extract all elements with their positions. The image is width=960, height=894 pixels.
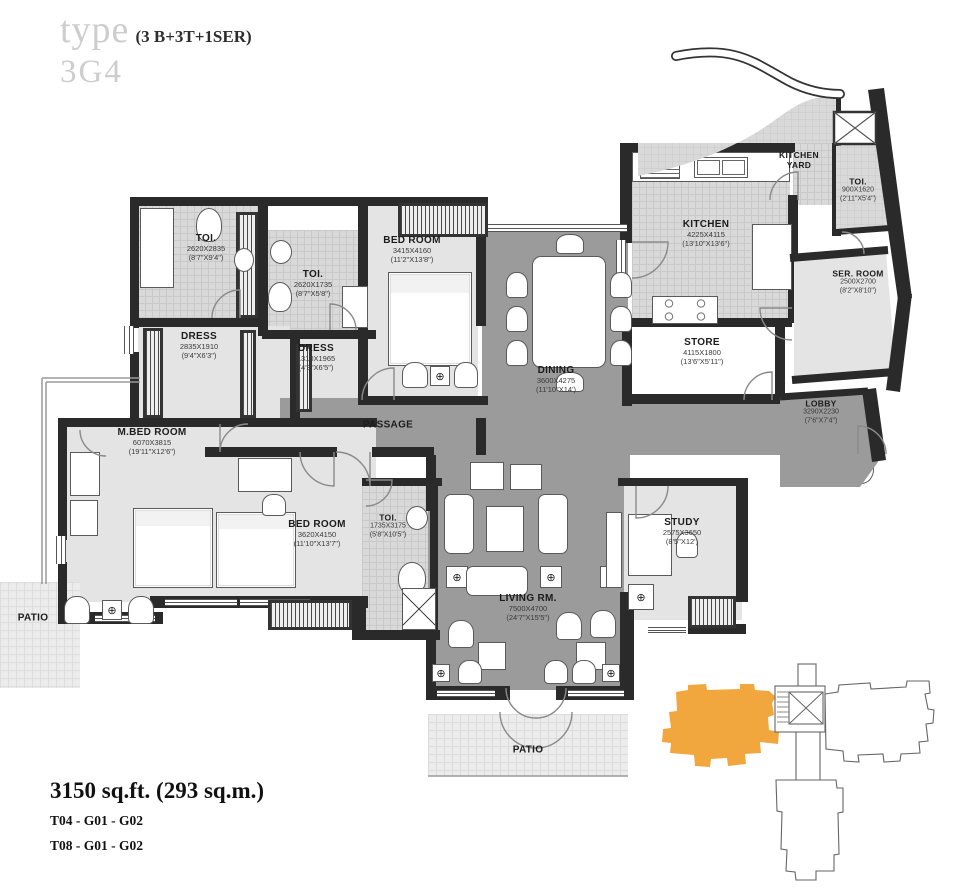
- chair: [556, 234, 584, 254]
- key-plan-highlighted-unit: [662, 684, 779, 767]
- tower-line-2: T08 - G01 - G02: [50, 838, 264, 854]
- side-table: [470, 462, 504, 490]
- room-label-toi2: TOI.2620X1735(8'7"X5'8"): [294, 269, 332, 299]
- toilet: [268, 282, 292, 312]
- wall: [62, 418, 377, 427]
- room-label-lobby: LOBBY3290X2230(7'6"X7'4"): [803, 398, 839, 426]
- plan-header: type(3 B+3T+1SER) 3G4: [60, 8, 252, 91]
- planter: ⊕: [432, 664, 450, 682]
- wall: [205, 447, 337, 457]
- window: [437, 690, 495, 697]
- chair: [556, 612, 582, 640]
- key-plan-right-wing: [825, 681, 934, 762]
- window: [568, 690, 624, 697]
- window: [648, 627, 686, 633]
- chair: [128, 596, 154, 624]
- room-label-patio-left: PATIO: [18, 613, 49, 624]
- refrigerator: [752, 224, 792, 290]
- wardrobe: [70, 452, 100, 496]
- table: [478, 642, 506, 670]
- type-word: type: [60, 9, 129, 51]
- chair: [64, 596, 90, 624]
- room-label-patio-bottom: PATIO: [513, 745, 544, 756]
- area-text: 3150 sq.ft. (293 sq.m.): [50, 778, 264, 804]
- wall: [736, 478, 748, 602]
- washbasin: [270, 240, 292, 264]
- chair: [402, 362, 428, 388]
- wall: [628, 394, 780, 404]
- drainboard: [640, 156, 680, 179]
- table: ⊕: [102, 600, 122, 620]
- chair: [454, 362, 478, 388]
- ledge-hatch: [398, 203, 488, 237]
- plan-footer: 3150 sq.ft. (293 sq.m.) T04 - G01 - G02 …: [50, 778, 264, 854]
- ledge-hatch: [240, 330, 256, 418]
- chair: [610, 272, 632, 298]
- window: [487, 224, 627, 232]
- wall: [372, 447, 434, 457]
- wall: [618, 478, 744, 486]
- wall: [775, 320, 785, 404]
- ledge-hatch: [143, 328, 163, 418]
- planter: ⊕: [446, 566, 468, 588]
- chair: [506, 340, 528, 366]
- room-label-dress1: DRESS2835X1910(9'4"X6'3"): [180, 331, 218, 361]
- sofa: [444, 494, 474, 554]
- console: [606, 512, 622, 588]
- chair: [506, 272, 528, 298]
- loveseat: [466, 566, 528, 596]
- room-label-mbedroom: M.BED ROOM6070X3815(19'11"X12'6"): [117, 427, 186, 457]
- room-label-toi1: TOI.2620X2835(8'7"X9'4"): [187, 233, 225, 263]
- side-table: [510, 464, 542, 490]
- room-label-living: LIVING RM.7500X4700(24'7"X15'5"): [499, 593, 556, 623]
- planter: ⊕: [540, 566, 562, 588]
- wall: [358, 396, 488, 405]
- chair: [610, 340, 632, 366]
- vanity: [342, 286, 368, 328]
- washbasin: ⊕: [838, 416, 866, 444]
- window: [124, 326, 134, 354]
- room-label-bedroom2: BED ROOM3620X4150(11'10"X13'7"): [288, 519, 345, 549]
- room-label-toi4: TOI.1735X3175(5'8"X10'5"): [370, 512, 406, 540]
- ledge-hatch: [268, 600, 352, 630]
- room-label-dress2: DRESS1310X1965(4'3"X6'5"): [297, 343, 335, 373]
- wall: [58, 418, 67, 540]
- chair: [448, 620, 474, 648]
- wall: [130, 197, 139, 328]
- chair: [458, 660, 482, 684]
- bed: [133, 508, 213, 588]
- chair: [610, 306, 632, 332]
- sofa: [538, 494, 568, 554]
- key-plan-bottom-wing: [796, 732, 820, 780]
- outer-wall-right: [886, 294, 912, 392]
- desk: [238, 458, 292, 492]
- wall: [258, 206, 268, 336]
- wall: [832, 96, 841, 236]
- ledge-hatch: [688, 596, 736, 628]
- washbasin: [406, 506, 428, 530]
- washbasin: [234, 248, 254, 272]
- key-plan: [648, 640, 960, 894]
- room-label-dining: DINING3600X4275(11'10"X14'): [536, 365, 576, 395]
- room-label-toi3: TOI.900X1620(2'11"X5'4"): [840, 176, 876, 204]
- room-label-study: STUDY2575X3650(8'5"X12'): [663, 517, 701, 547]
- chair: [262, 494, 286, 516]
- wall: [476, 418, 486, 455]
- room-label-bedroom-top: BED ROOM3415X4160(11'2"X13'8"): [383, 235, 440, 265]
- bed: [388, 272, 472, 366]
- unit-code: 3G4: [60, 54, 252, 91]
- tower-line-1: T04 - G01 - G02: [50, 813, 264, 829]
- shower: [402, 588, 436, 630]
- planter: ⊕: [430, 366, 450, 386]
- window: [165, 599, 237, 606]
- chair: [590, 610, 616, 638]
- chair: [506, 306, 528, 332]
- chair: [544, 660, 568, 684]
- unit-config: (3 B+3T+1SER): [135, 27, 251, 46]
- room-label-passage: PASSAGE: [363, 420, 413, 431]
- wall: [362, 630, 440, 640]
- wall: [625, 143, 795, 152]
- window: [56, 536, 66, 564]
- wall: [130, 352, 139, 426]
- bathtub: [140, 208, 174, 288]
- room-label-kitchen: KITCHEN4225X4115(13'10"X13'6"): [682, 219, 729, 249]
- bed: [216, 512, 296, 588]
- planter: ⊕: [602, 664, 620, 682]
- curved-yard-wall: [676, 52, 840, 94]
- toilet: [844, 450, 874, 484]
- dining-table: [532, 256, 606, 368]
- dresser: [70, 500, 98, 536]
- room-label-kitchen-yard: KITCHENYARD: [779, 150, 819, 170]
- wall: [130, 318, 265, 327]
- planter: ⊕: [628, 584, 654, 610]
- stove: [652, 296, 718, 324]
- room-label-ser-room: SER. ROOM2500X2700(8'2"X8'10"): [832, 268, 883, 296]
- ottoman: [486, 506, 524, 552]
- kitchen-sink: [694, 157, 748, 178]
- chair: [572, 660, 596, 684]
- room-label-store: STORE4115X1800(13'6"X5'11"): [681, 337, 724, 367]
